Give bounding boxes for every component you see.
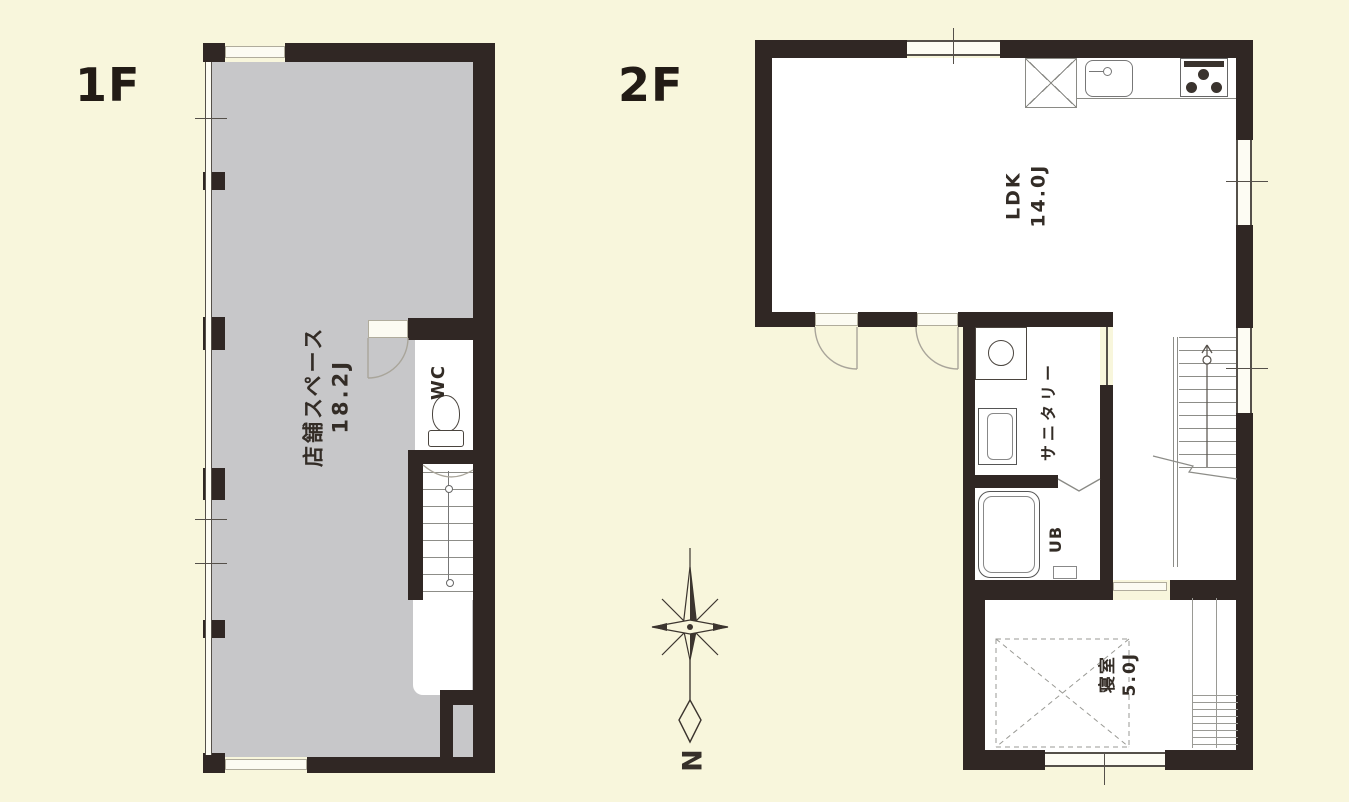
- ldk-bottom-wall: [958, 312, 1113, 327]
- sanitary-room-label: サニタリー: [1029, 332, 1065, 490]
- balcony-door-swing-arc: [815, 327, 858, 370]
- shop-room-label: 店舗スペース 18.2J: [288, 311, 368, 481]
- bottom-wall: [307, 757, 495, 773]
- stove-burner: [1186, 82, 1197, 93]
- stove-grill-strip: [1184, 61, 1224, 67]
- floor2-label: 2F: [618, 58, 683, 112]
- rear-closet-floor: [453, 705, 473, 757]
- stair-entry-curve: [421, 462, 475, 486]
- stair-newel-circle: [445, 485, 453, 493]
- sanitary-left-wall: [963, 327, 975, 595]
- window-center-tick: [953, 28, 954, 64]
- shop-room-size: 18.2J: [328, 325, 355, 466]
- bathtub-inner-rim: [983, 496, 1035, 573]
- floor1-label: 1F: [75, 58, 140, 112]
- sanitary-right-wall: [1100, 385, 1113, 595]
- wc-label-text: WC: [428, 364, 449, 399]
- faucet-icon: [1103, 67, 1112, 76]
- shop-entrance-top: [225, 46, 285, 58]
- ldk-room-label: LDK 14.0J: [991, 152, 1061, 240]
- balcony-door-opening: [815, 313, 858, 326]
- toilet-tank-icon: [428, 430, 464, 447]
- kitchen-sink-icon: [1085, 60, 1133, 97]
- north-letter: N: [674, 749, 705, 772]
- washer-drum-circle: [988, 340, 1014, 366]
- floorplan-canvas: 1F 2F 店舗スペース 18.2J: [0, 0, 1349, 802]
- sanitary-label-text: サニタリー: [1035, 361, 1059, 461]
- ldk-room-name: LDK: [1001, 164, 1026, 228]
- bath-counter-box: [1053, 566, 1077, 579]
- stair-newel-circle: [446, 579, 454, 587]
- storefront-window: [205, 62, 212, 755]
- rear-closet-left-wall: [440, 690, 453, 757]
- understair-hatch: [1192, 695, 1238, 749]
- floor1-plan: 店舗スペース 18.2J WC: [203, 43, 495, 773]
- ldk-top-wall: [755, 40, 907, 58]
- balcony-door-swing-arc: [916, 327, 959, 370]
- ub-room-label: UB: [1041, 516, 1071, 562]
- stove-burner: [1198, 69, 1209, 80]
- corner-pillar: [203, 753, 225, 773]
- washbasin-bowl: [987, 413, 1013, 460]
- shop-room-name: 店舗スペース: [301, 325, 328, 466]
- bedroom-room-size: 5.0J: [1119, 652, 1141, 696]
- stair-landing: [413, 600, 472, 695]
- kitchen-counter-line: [1077, 98, 1236, 99]
- window-center-tick: [1226, 368, 1268, 369]
- wc-door-swing-arc: [367, 338, 409, 380]
- floor2-plan: LDK 14.0J サニタリー: [755, 40, 1253, 770]
- window-mullion-tick: [195, 563, 227, 564]
- ldk-left-wall: [755, 40, 772, 327]
- balcony-door-opening: [917, 313, 958, 326]
- sanitary-bottom-wall: [963, 580, 1113, 600]
- ldk-room-size: 14.0J: [1026, 164, 1051, 228]
- bedroom-left-wall: [963, 592, 985, 770]
- right-wall-2f: [1236, 225, 1253, 328]
- compass-north-label: N: [666, 740, 714, 780]
- ldk-top-wall: [1000, 40, 1253, 58]
- bedroom-room-name: 寝室: [1097, 652, 1119, 696]
- ldk-side-window: [1236, 140, 1252, 225]
- wc-room-label: WC: [417, 346, 461, 418]
- ub-label-text: UB: [1047, 525, 1066, 552]
- sanitary-door-leaf: [1106, 327, 1108, 385]
- wc-top-wall: [408, 318, 493, 340]
- right-wall-2f: [1236, 40, 1253, 140]
- shop-entrance-bottom: [225, 759, 307, 770]
- window-center-tick: [1104, 754, 1105, 785]
- right-wall-2f: [1236, 413, 1253, 770]
- bedroom-room-label: 寝室 5.0J: [1085, 638, 1153, 710]
- bedroom-sliding-door: [1113, 582, 1167, 591]
- bedroom-bottom-wall: [963, 750, 1045, 770]
- compass-rose-icon: [640, 542, 740, 742]
- stair-break-line: [1153, 448, 1237, 482]
- ldk-bottom-wall: [755, 312, 815, 327]
- window-mullion-tick: [195, 519, 227, 520]
- right-wall: [473, 43, 495, 773]
- ldk-bottom-wall: [858, 312, 917, 327]
- window-center-tick: [1226, 181, 1268, 182]
- window-mullion-tick: [195, 118, 227, 119]
- wc-door-opening: [368, 320, 408, 338]
- top-wall: [285, 43, 495, 62]
- stove-burner: [1211, 82, 1222, 93]
- bedroom-window: [1045, 752, 1165, 767]
- corner-pillar: [203, 43, 225, 62]
- hall-side-window: [1236, 328, 1252, 413]
- refrigerator-space-icon: [1025, 58, 1077, 108]
